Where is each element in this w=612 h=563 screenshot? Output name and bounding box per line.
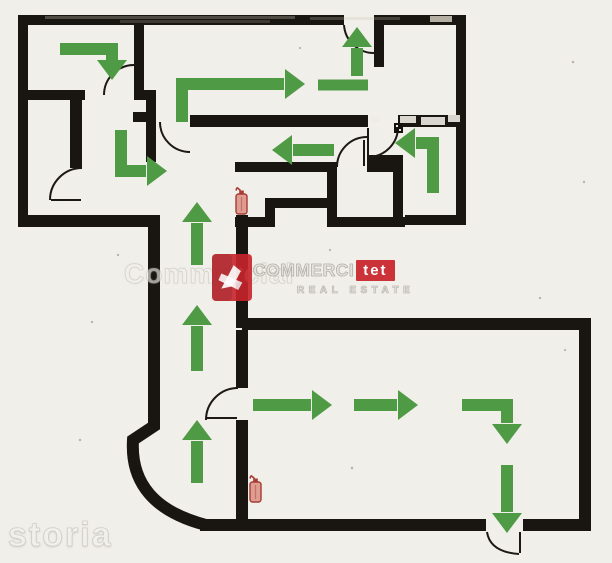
wall [247, 519, 486, 531]
wall [28, 90, 85, 100]
wall [242, 318, 590, 330]
fire-extinguisher-icon [250, 476, 261, 503]
wall [148, 215, 160, 420]
wall [235, 162, 337, 172]
wall [190, 115, 368, 127]
floor-plan-stage [0, 0, 612, 563]
wall [398, 115, 466, 127]
exit-door-arc [487, 532, 519, 554]
wall [456, 15, 466, 123]
wall [236, 420, 248, 531]
evacuation-arrow-vertical-corridor-up-3 [182, 420, 212, 483]
wall [393, 155, 403, 217]
evacuation-arrow-bigroom-exit-down [492, 465, 522, 533]
wall [18, 215, 160, 227]
evacuation-arrow-bigroom-right-down [462, 405, 522, 444]
wall [374, 25, 384, 67]
evacuation-plan-page: { "colors": { "background": "#f1efe9", "… [0, 0, 612, 563]
evacuation-arrow-bigroom-right-1 [253, 390, 332, 420]
evacuation-arrow-corridor-left [272, 135, 334, 165]
evacuation-arrow-bigroom-right-2 [354, 390, 418, 420]
wall [133, 112, 146, 122]
evacuation-arrow-room-topleft-right-down [60, 49, 127, 80]
wall [405, 215, 466, 225]
door-arc [160, 122, 190, 152]
wall [374, 15, 466, 25]
door-arc [368, 127, 398, 157]
wall [18, 15, 344, 25]
floor-plan [0, 0, 612, 563]
wall [236, 330, 248, 388]
wall [456, 115, 466, 215]
evacuation-arrow-room-topmid-up-right [182, 69, 305, 122]
wall [134, 25, 144, 100]
fire-extinguisher-icon [236, 188, 247, 215]
door-arc [337, 137, 367, 167]
wall [523, 519, 591, 531]
door-arc [206, 388, 238, 420]
evacuation-arrow-vertical-corridor-up-1 [182, 202, 212, 265]
wall [327, 217, 405, 227]
wall [70, 100, 82, 168]
wall [18, 15, 28, 227]
evacuation-arrow-junction-down-right [121, 130, 167, 186]
door-arc [50, 168, 82, 200]
doors-layer [50, 25, 520, 554]
wall [134, 90, 156, 100]
wall [146, 95, 156, 162]
evacuation-arrow-vertical-corridor-up-2 [182, 305, 212, 371]
wall [579, 318, 591, 531]
wall [236, 215, 248, 328]
wall [327, 162, 337, 227]
